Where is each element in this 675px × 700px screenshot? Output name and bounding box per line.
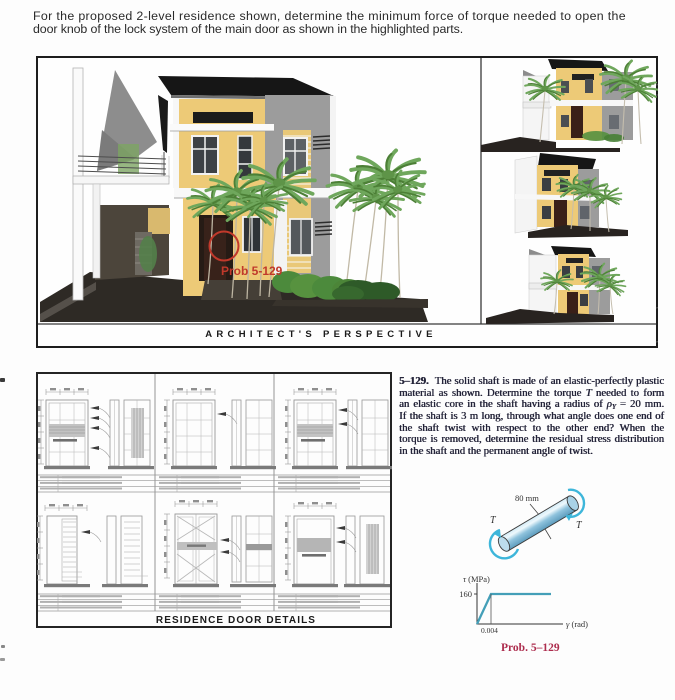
svg-text:0.004: 0.004: [481, 626, 498, 635]
svg-text:160: 160: [459, 589, 472, 599]
svg-text:τ (MPa): τ (MPa): [463, 574, 490, 584]
svg-text:T: T: [576, 520, 583, 531]
svg-text:Prob. 5–129: Prob. 5–129: [501, 642, 560, 654]
svg-text:RESIDENCE DOOR DETAILS: RESIDENCE DOOR DETAILS: [156, 615, 316, 626]
svg-text:γ (rad): γ (rad): [566, 619, 588, 629]
svg-text:ARCHITECT'S PERSPECTIVE: ARCHITECT'S PERSPECTIVE: [205, 329, 437, 340]
svg-text:80 mm: 80 mm: [515, 493, 539, 503]
svg-text:Prob 5-129: Prob 5-129: [221, 264, 283, 278]
svg-text:T: T: [490, 515, 497, 526]
